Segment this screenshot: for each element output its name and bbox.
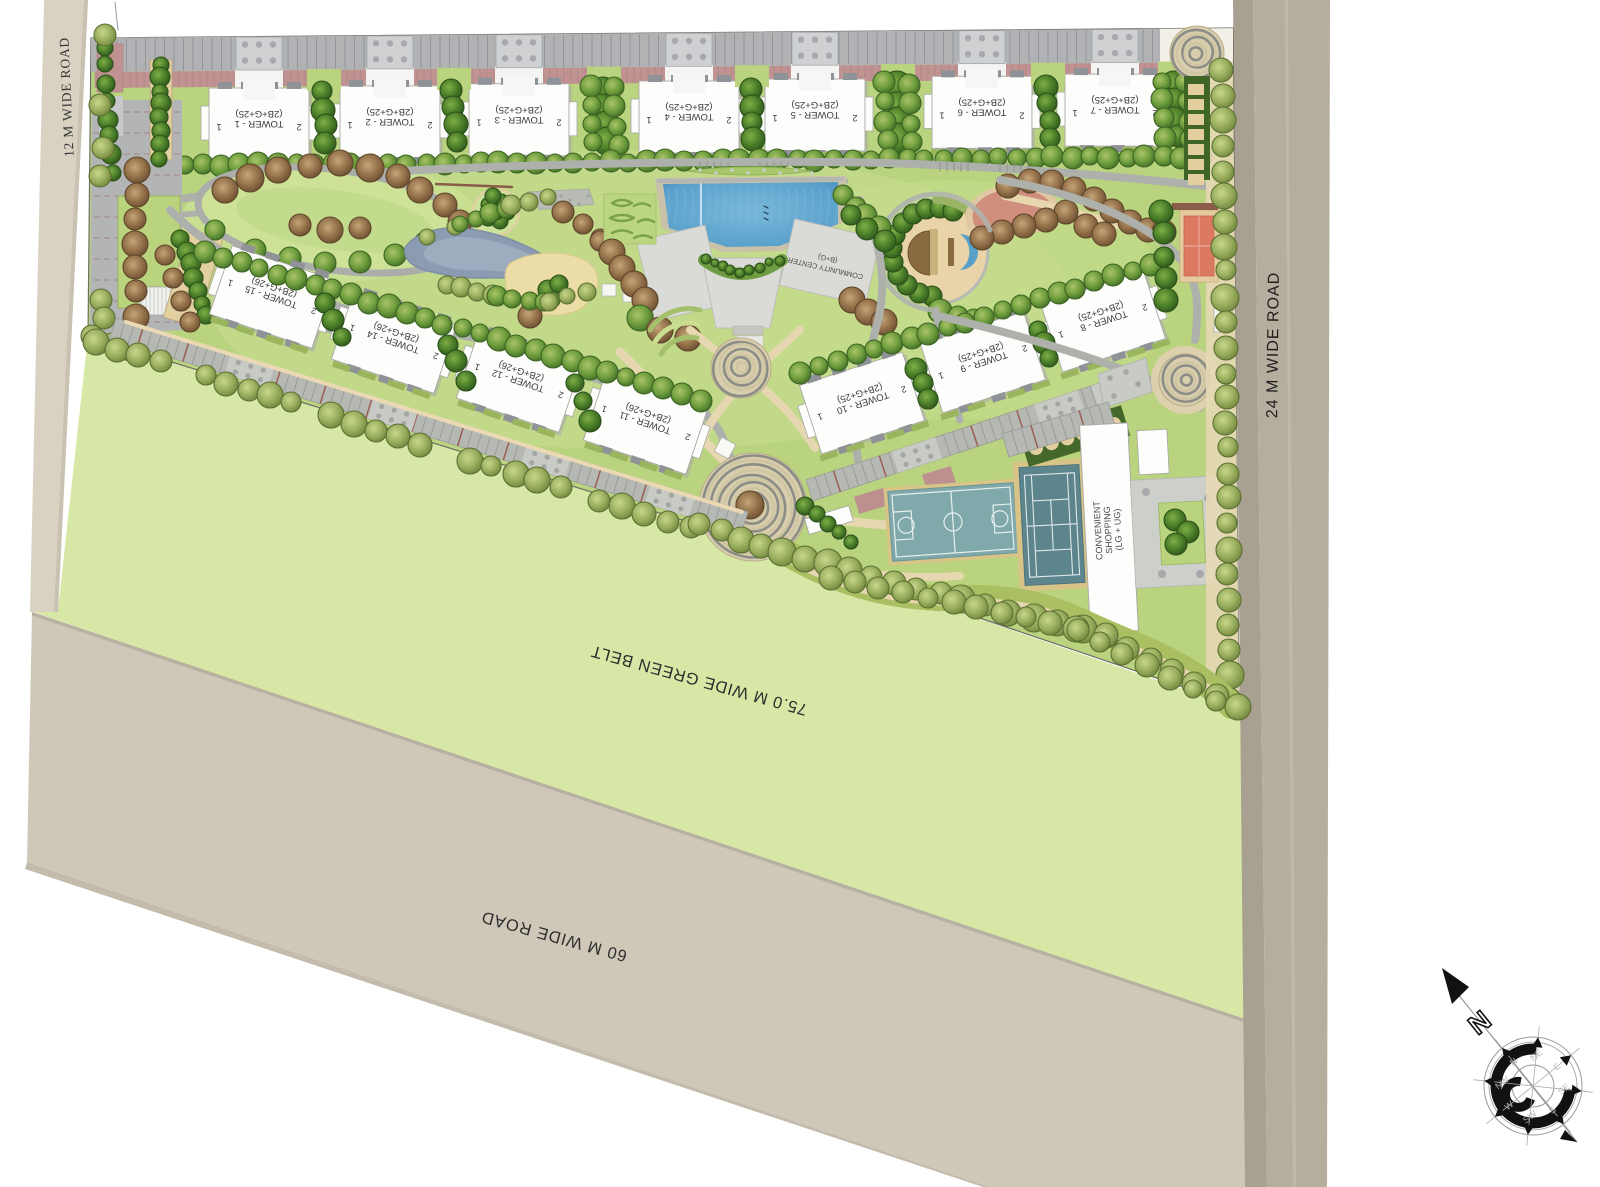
svg-text:2: 2 — [726, 115, 731, 125]
svg-text:2: 2 — [852, 113, 857, 123]
svg-text:1: 1 — [347, 120, 352, 130]
svg-text:1: 1 — [476, 118, 481, 128]
svg-text:(2B+G+25): (2B+G+25) — [792, 99, 839, 110]
svg-text:(2B+G+25): (2B+G+25) — [496, 104, 543, 115]
svg-text:1: 1 — [216, 122, 221, 132]
svg-text:2: 2 — [1019, 111, 1024, 121]
svg-text:(2B+G+25): (2B+G+25) — [1092, 94, 1139, 105]
svg-text:24 M WIDE ROAD: 24 M WIDE ROAD — [1264, 272, 1283, 419]
svg-text:2: 2 — [296, 122, 301, 132]
svg-text:(2B+G+25): (2B+G+25) — [666, 101, 713, 112]
svg-text:1: 1 — [939, 111, 944, 121]
svg-text:1: 1 — [1072, 108, 1077, 118]
svg-text:2: 2 — [556, 118, 561, 128]
svg-text:(2B+G+25): (2B+G+25) — [236, 108, 283, 119]
svg-text:2: 2 — [427, 120, 432, 130]
svg-text:(2B+G+25): (2B+G+25) — [367, 106, 414, 117]
svg-text:1: 1 — [772, 113, 777, 123]
svg-text:(2B+G+25): (2B+G+25) — [959, 96, 1006, 107]
svg-text:1: 1 — [646, 115, 651, 125]
